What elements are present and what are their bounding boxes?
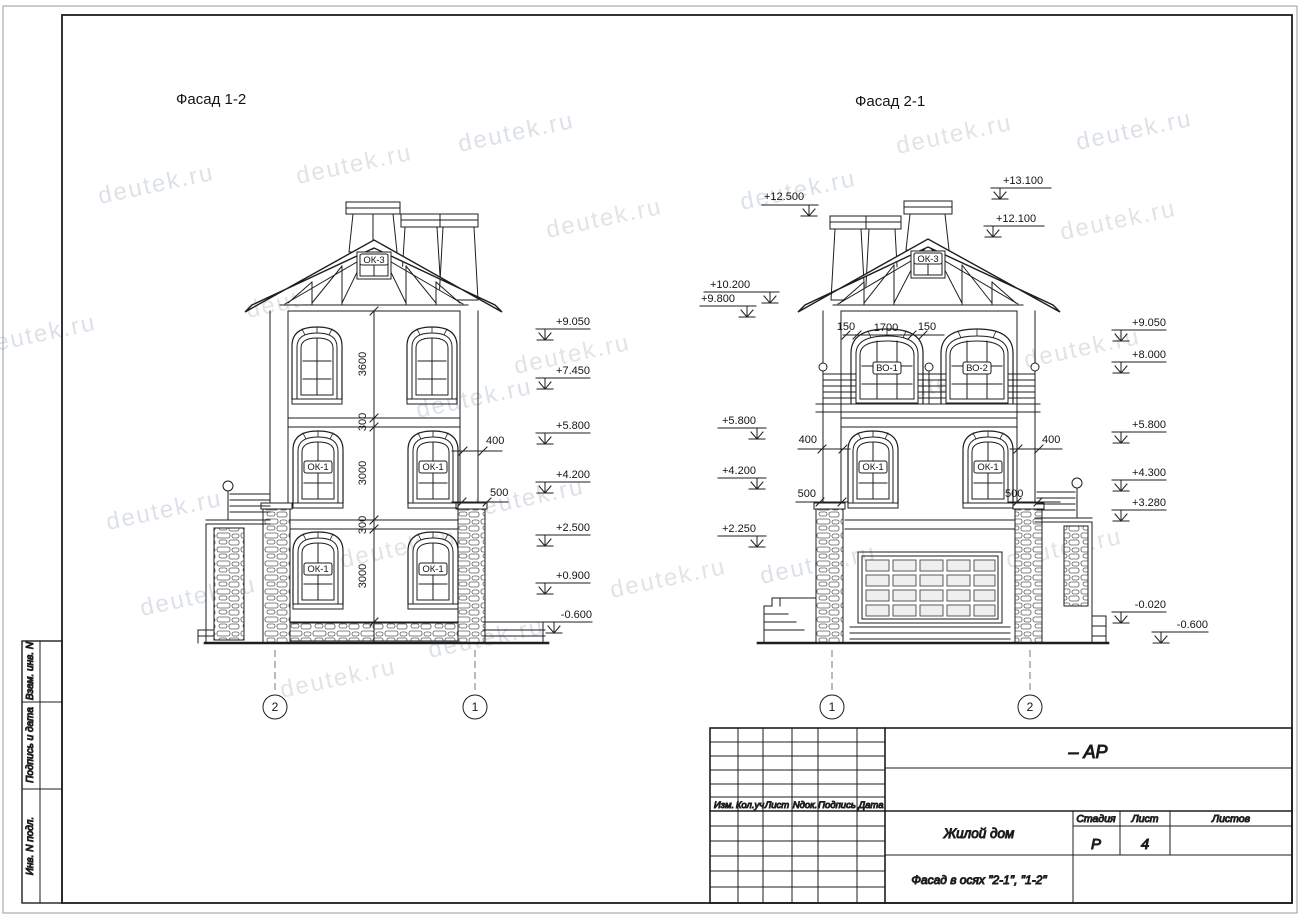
dim-label: 3000	[357, 564, 369, 588]
watermark: deutek.ru	[96, 159, 217, 210]
window-tag: ОК-1	[304, 563, 332, 575]
watermark: deutek.ru	[1058, 195, 1179, 246]
axis-label: 2	[272, 700, 279, 714]
window-tag: ВО-2	[963, 362, 991, 374]
elevation-label: -0.600	[561, 609, 592, 621]
doc-code: – АР	[1067, 742, 1107, 762]
elevation-label: +12.100	[996, 213, 1036, 225]
watermark: deutek.ru	[278, 653, 399, 704]
revision-header: Nдок.	[793, 800, 818, 811]
horizontal-dims-right-facade: 400 500 400 500	[796, 434, 1062, 506]
window	[407, 327, 457, 404]
facade-left-title: Фасад 1-2	[176, 91, 246, 108]
window	[292, 327, 342, 404]
window-label: ОК-1	[422, 564, 443, 575]
window-label: ОК-1	[422, 462, 443, 473]
elevation-label: +3.280	[1132, 497, 1166, 509]
elevation-label: +8.000	[1132, 349, 1166, 361]
dim-label: 400	[799, 434, 817, 446]
axes-right-facade: 1 2	[820, 650, 1042, 719]
revision-header: Кол.уч	[736, 800, 764, 811]
garage-door	[850, 552, 1010, 639]
dim-label: 500	[490, 487, 508, 499]
elevation-label: +4.200	[556, 469, 590, 481]
gable-window-tag: ОК-3	[914, 253, 942, 265]
window-tag: ОК-1	[859, 461, 887, 473]
window-label: ОК-1	[977, 462, 998, 473]
vertical-dims-left-facade: 3600 300 3000 300 3000	[357, 307, 378, 643]
window-tag: ОК-1	[419, 461, 447, 473]
elevation-label: +12.500	[764, 191, 804, 203]
dim-label: 150	[918, 321, 936, 333]
elevation-label: +2.500	[556, 522, 590, 534]
window-label: ВО-2	[966, 363, 988, 374]
elevation-label: -0.020	[1135, 599, 1166, 611]
elevation-label: +7.450	[556, 365, 590, 377]
watermark: deutek.ru	[1022, 323, 1143, 374]
dim-label: 500	[798, 488, 816, 500]
dim-label: 300	[357, 413, 369, 431]
axis-label: 1	[829, 700, 836, 714]
window-tag: ОК-1	[304, 461, 332, 473]
elevation-label: +10.200	[710, 279, 750, 291]
elevation-label: +4.200	[722, 465, 756, 477]
drawing-sheet: deutek.ru deutek.ru deutek.ru deutek.ru …	[0, 0, 1300, 919]
title-block: Изм. Кол.уч Лист Nдок. Подпись Дата – АР…	[710, 728, 1292, 903]
gable-window-tag: ОК-3	[360, 254, 388, 266]
side-strip-label: Подпись и дата	[25, 707, 36, 783]
dim-label: 500	[1005, 488, 1023, 500]
watermark: deutek.ru	[0, 309, 99, 360]
watermark: deutek.ru	[456, 107, 577, 158]
project-name: Жилой дом	[943, 826, 1015, 841]
axis-label: 1	[472, 700, 479, 714]
gable-window-label: ОК-3	[363, 255, 384, 266]
revision-header: Лист	[764, 800, 790, 811]
window-label: ОК-1	[307, 564, 328, 575]
stage-label: Стадия	[1076, 813, 1116, 825]
elevation-label: +5.800	[556, 420, 590, 432]
floor1-windows-right-facade: ОК-1 ОК-1	[848, 431, 1013, 508]
watermark: deutek.ru	[894, 109, 1015, 160]
drawing-title: Фасад в осях "2-1", "1-2"	[911, 873, 1047, 887]
elevation-label: +4.300	[1132, 467, 1166, 479]
window-tag: ОК-1	[419, 563, 447, 575]
elevation-label: +0.900	[556, 570, 590, 582]
elevation-label: +9.050	[1132, 317, 1166, 329]
axis-label: 2	[1027, 700, 1034, 714]
side-strip-label: Инв. N подл.	[25, 817, 36, 875]
title-block-right: – АР Жилой дом Фасад в осях "2-1", "1-2"…	[885, 742, 1292, 903]
dim-label: 400	[486, 435, 504, 447]
dim-label: 150	[837, 321, 855, 333]
watermark: deutek.ru	[294, 139, 415, 190]
revision-header: Подпись	[818, 800, 856, 811]
stage-value: Р	[1091, 836, 1101, 853]
side-strip: Взам. инв. N Подпись и дата Инв. N подл.	[22, 641, 62, 903]
drawing-canvas: deutek.ru deutek.ru deutek.ru deutek.ru …	[0, 0, 1300, 919]
revision-header: Изм.	[714, 800, 734, 811]
gable-window-label: ОК-3	[917, 254, 938, 265]
elevation-label: +2.250	[722, 523, 756, 535]
watermark: deutek.ru	[1074, 105, 1195, 156]
elevation-marks-right-facade-right: +9.050 +8.000 +5.800 +4.300 +3.280 -0.02…	[1112, 317, 1208, 643]
elevation-label: -0.600	[1177, 619, 1208, 631]
dim-label: 1700	[874, 322, 898, 334]
revision-header: Дата	[857, 800, 883, 811]
elevation-label: +5.800	[1132, 419, 1166, 431]
dim-label: 3600	[357, 352, 369, 376]
window-tag: ВО-1	[873, 362, 901, 374]
elevation-label: +5.800	[722, 415, 756, 427]
window-label: ОК-1	[862, 462, 883, 473]
watermark: deutek.ru	[544, 193, 665, 244]
elevation-marks-top: +13.100 +12.100	[984, 175, 1051, 237]
elevation-label: +13.100	[1003, 175, 1043, 187]
sheet-label: Лист	[1130, 813, 1158, 825]
sheet-value: 4	[1141, 836, 1149, 853]
window-label: ВО-1	[876, 363, 898, 374]
elevation-label: +9.050	[556, 316, 590, 328]
window-label: ОК-1	[307, 462, 328, 473]
side-strip-label: Взам. инв. N	[25, 641, 36, 700]
elevation-label: +9.800	[701, 293, 735, 305]
facade-right-title: Фасад 2-1	[855, 93, 925, 110]
watermark: deutek.ru	[608, 553, 729, 604]
window-tag: ОК-1	[974, 461, 1002, 473]
revision-table: Изм. Кол.уч Лист Nдок. Подпись Дата	[710, 728, 885, 903]
dim-label: 300	[357, 516, 369, 534]
dim-label: 400	[1042, 434, 1060, 446]
watermark: deutek.ru	[104, 485, 225, 536]
dim-label: 3000	[357, 461, 369, 485]
sheets-label: Листов	[1211, 813, 1251, 825]
